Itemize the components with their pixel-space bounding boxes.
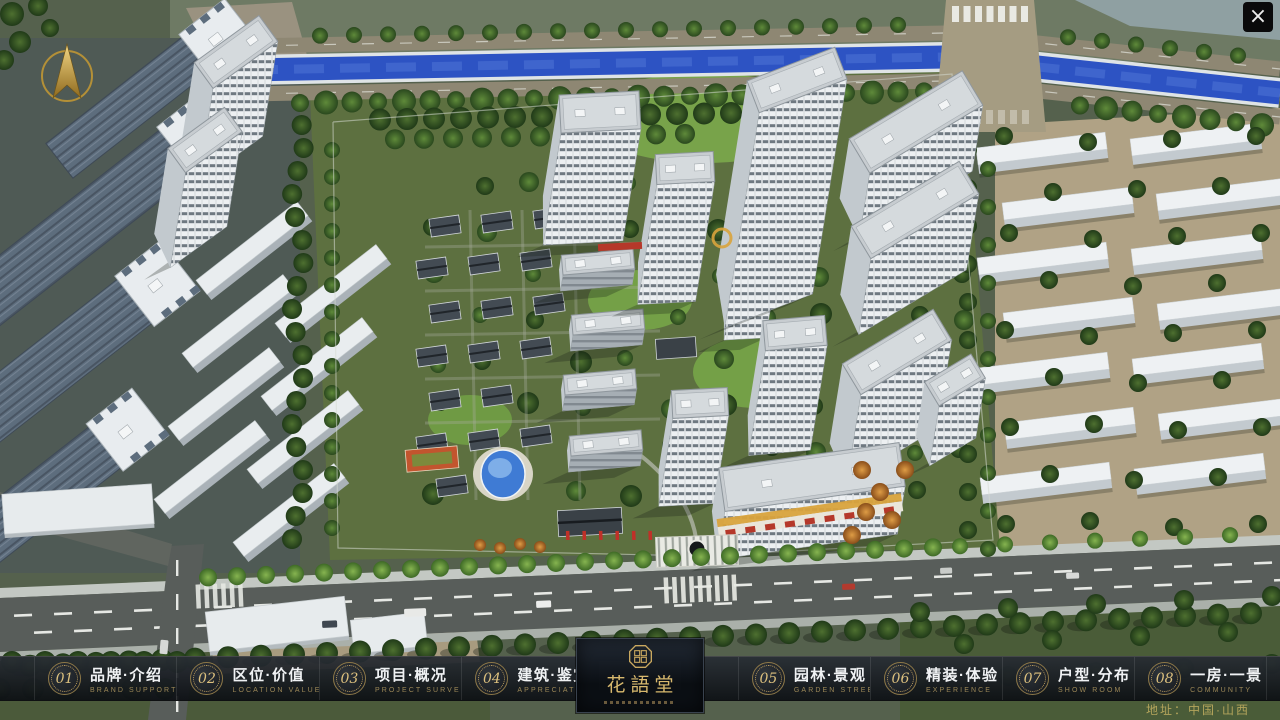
item-number: 02 [198, 671, 216, 687]
item-subtitle-en: LOCATION VALUE [232, 687, 318, 694]
item-number: 01 [56, 671, 74, 687]
item-number: 08 [1156, 671, 1174, 687]
nav-item-07[interactable]: 07 户型·分布 SHOW ROOM [1002, 657, 1134, 700]
item-title-zh: 园林·景观 [794, 664, 870, 685]
nav-item-06[interactable]: 06 精装·体验 EXPERIENCE [870, 657, 1002, 700]
item-title-zh: 品牌·介绍 [90, 664, 176, 685]
item-number-badge: 01 [48, 662, 81, 695]
compass-north-icon [36, 40, 98, 106]
item-title-zh: 户型·分布 [1058, 664, 1131, 685]
nav-item-01[interactable]: 01 品牌·介绍 BRAND SUPPORT [34, 657, 176, 700]
item-labels: 精装·体验 EXPERIENCE [926, 664, 999, 694]
item-subtitle-en: BRAND SUPPORT [90, 687, 176, 694]
nav-item-05[interactable]: 05 园林·景观 GARDEN STREET [738, 657, 870, 700]
item-number-badge: 07 [1016, 662, 1049, 695]
close-icon: × [1249, 6, 1267, 28]
item-subtitle-en: EXPERIENCE [926, 687, 999, 694]
item-labels: 户型·分布 SHOW ROOM [1058, 664, 1131, 694]
item-number-badge: 08 [1148, 662, 1181, 695]
seal-icon [628, 644, 653, 669]
item-number: 04 [483, 671, 501, 687]
item-subtitle-en: GARDEN STREET [794, 687, 870, 694]
item-labels: 品牌·介绍 BRAND SUPPORT [90, 664, 176, 694]
item-title-zh: 区位·价值 [232, 664, 318, 685]
item-number-badge: 03 [333, 662, 366, 695]
item-subtitle-en: SHOW ROOM [1058, 687, 1131, 694]
nav-group-right: 05 园林·景观 GARDEN STREET 06 精装·体验 EXPERIEN… [738, 657, 1267, 700]
item-number-badge: 04 [475, 662, 508, 695]
masterplan-render [0, 0, 1280, 720]
nav-item-02[interactable]: 02 区位·价值 LOCATION VALUE [176, 657, 318, 700]
item-number: 05 [759, 671, 777, 687]
item-number: 06 [892, 671, 910, 687]
item-labels: 一房·一景 COMMUNITY [1190, 664, 1263, 694]
nav-item-08[interactable]: 08 一房·一景 COMMUNITY [1134, 657, 1267, 700]
item-subtitle-en: PROJECT SURVEY [375, 687, 461, 694]
project-name: 花語堂 [601, 670, 678, 697]
item-number: 03 [341, 671, 359, 687]
nav-group-left: 01 品牌·介绍 BRAND SUPPORT 02 区位·价值 LOCATION… [34, 657, 604, 700]
item-labels: 项目·概况 PROJECT SURVEY [375, 664, 461, 694]
item-number-badge: 02 [190, 662, 223, 695]
item-number-badge: 05 [752, 662, 785, 695]
item-title-zh: 精装·体验 [926, 664, 999, 685]
project-address: 地址：中国·山西 [1146, 701, 1250, 718]
item-labels: 区位·价值 LOCATION VALUE [232, 664, 318, 694]
project-logo-panel[interactable]: 花語堂 [576, 638, 704, 713]
close-button[interactable]: × [1243, 2, 1273, 32]
item-title-zh: 一房·一景 [1190, 664, 1263, 685]
item-labels: 园林·景观 GARDEN STREET [794, 664, 870, 694]
nav-item-03[interactable]: 03 项目·概况 PROJECT SURVEY [319, 657, 461, 700]
presentation-screen: × 01 品牌·介绍 BRAND SUPPORT 02 区位·价值 LOCATI… [0, 0, 1280, 720]
item-subtitle-en: COMMUNITY [1190, 687, 1263, 694]
item-number-badge: 06 [884, 662, 917, 695]
item-number: 07 [1024, 671, 1042, 687]
logo-subtext [604, 701, 676, 704]
item-title-zh: 项目·概况 [375, 664, 461, 685]
